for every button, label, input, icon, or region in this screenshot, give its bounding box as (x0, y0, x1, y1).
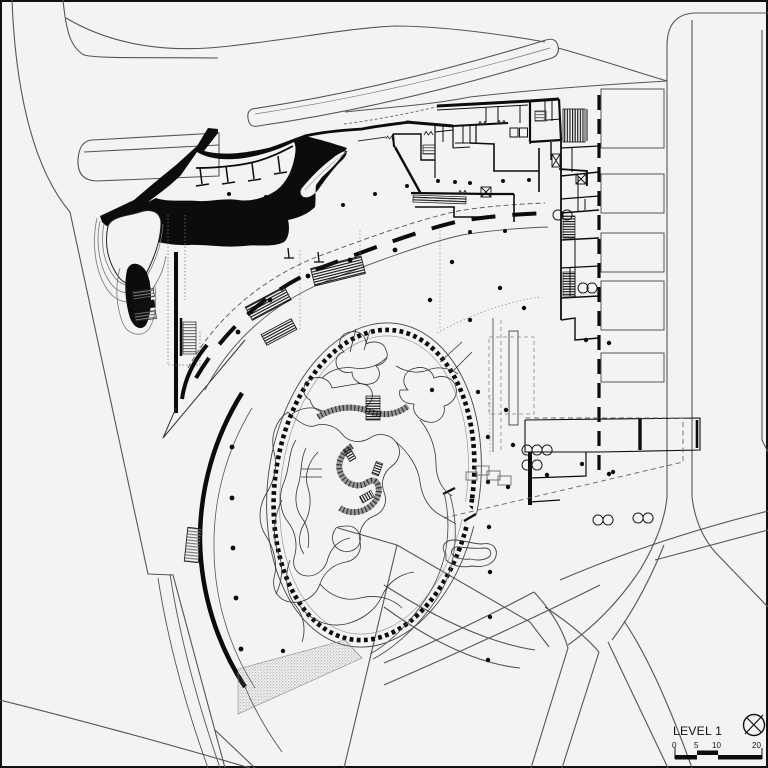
svg-text:LEVEL 1: LEVEL 1 (673, 724, 722, 738)
svg-text:5: 5 (694, 741, 699, 750)
svg-text:10: 10 (712, 741, 721, 750)
svg-text:20: 20 (752, 741, 761, 750)
